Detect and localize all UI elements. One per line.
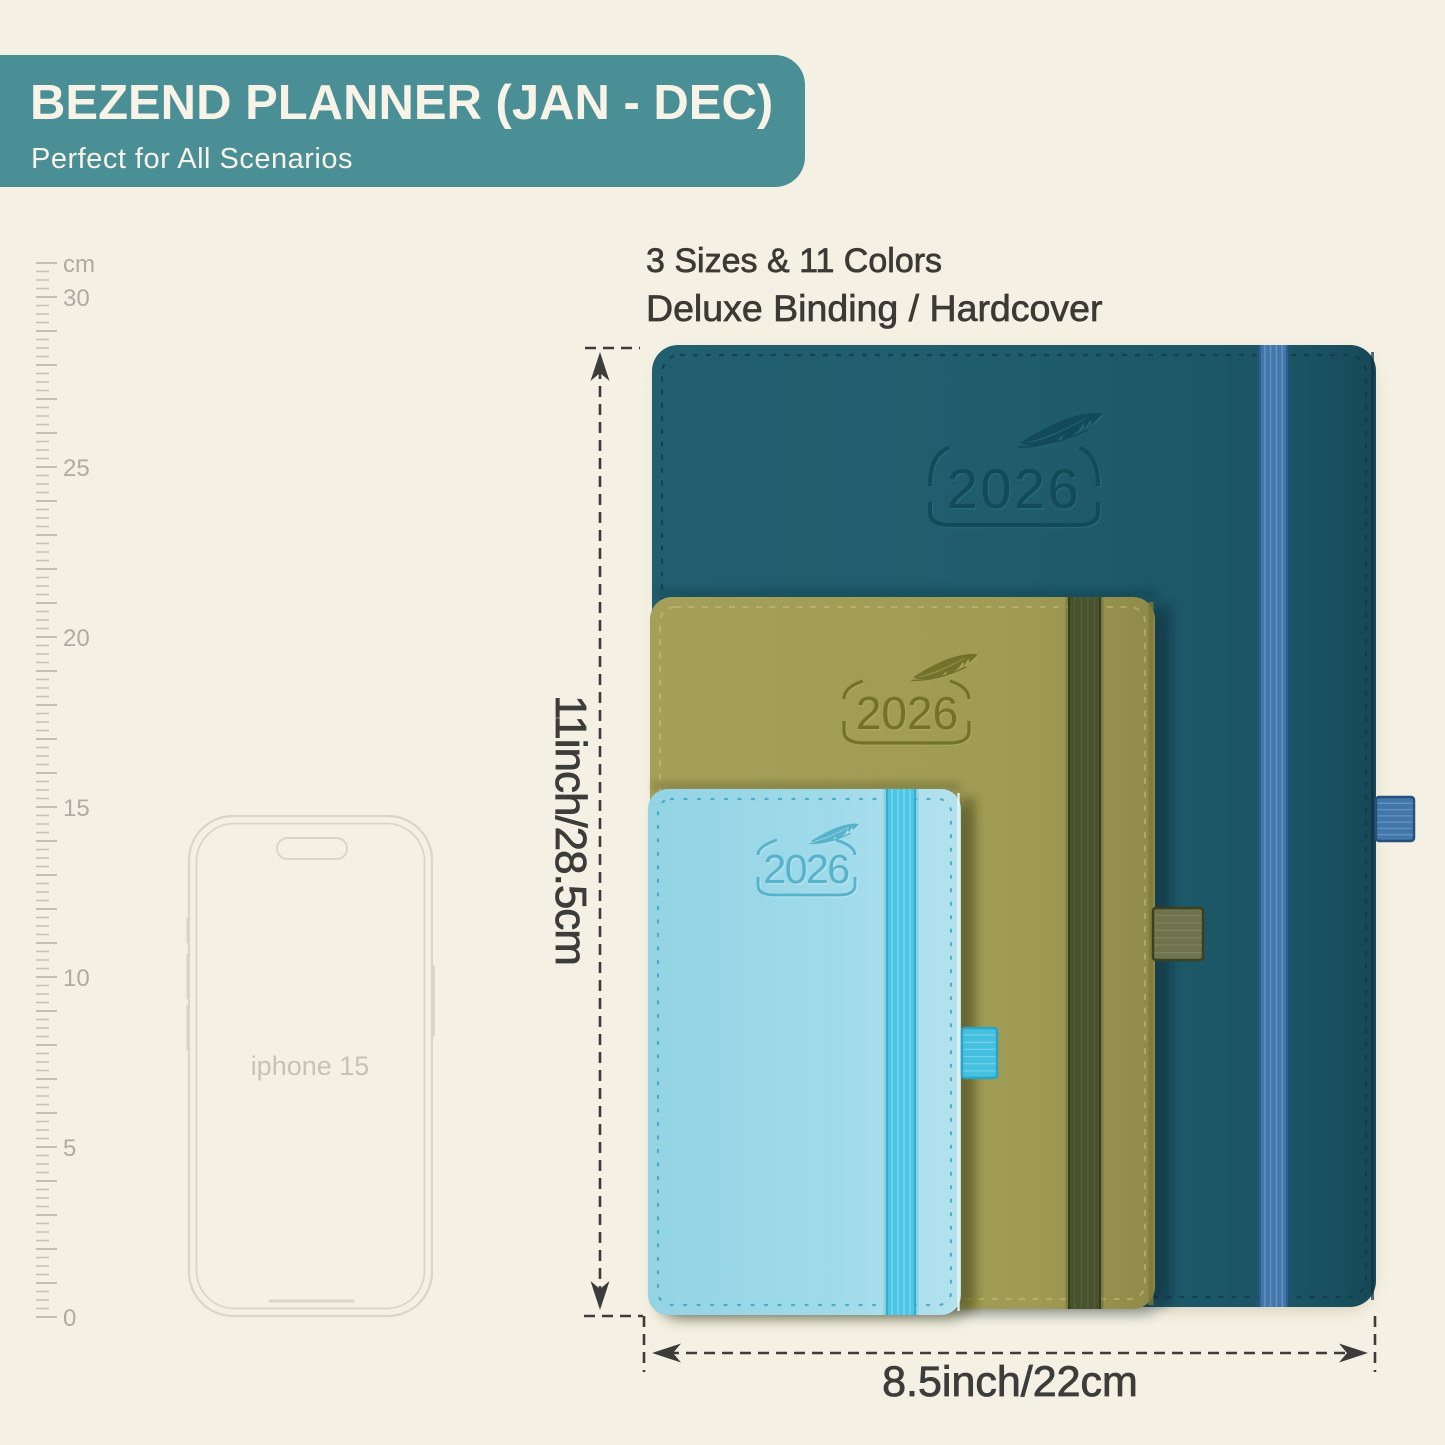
- svg-text:2026: 2026: [856, 687, 958, 739]
- svg-text:5: 5: [63, 1135, 76, 1162]
- svg-text:8.5inch/22cm: 8.5inch/22cm: [882, 1358, 1138, 1406]
- svg-text:Deluxe Binding / Hardcover: Deluxe Binding / Hardcover: [646, 287, 1102, 329]
- svg-text:15: 15: [63, 795, 90, 822]
- svg-text:11inch/28.5cm: 11inch/28.5cm: [546, 695, 595, 965]
- svg-text:cm: cm: [63, 251, 95, 278]
- svg-text:10: 10: [63, 965, 90, 992]
- svg-text:3 Sizes & 11 Colors: 3 Sizes & 11 Colors: [646, 242, 942, 280]
- svg-text:0: 0: [63, 1305, 76, 1332]
- svg-text:25: 25: [63, 455, 90, 482]
- svg-text:2026: 2026: [947, 457, 1082, 520]
- svg-text:Perfect for All Scenarios: Perfect for All Scenarios: [31, 143, 353, 175]
- svg-text:2026: 2026: [763, 846, 848, 892]
- svg-text:30: 30: [63, 285, 90, 312]
- svg-text:BEZEND PLANNER (JAN - DEC): BEZEND PLANNER (JAN - DEC): [30, 76, 773, 130]
- svg-text:iphone 15: iphone 15: [251, 1051, 370, 1081]
- svg-text:20: 20: [63, 625, 90, 652]
